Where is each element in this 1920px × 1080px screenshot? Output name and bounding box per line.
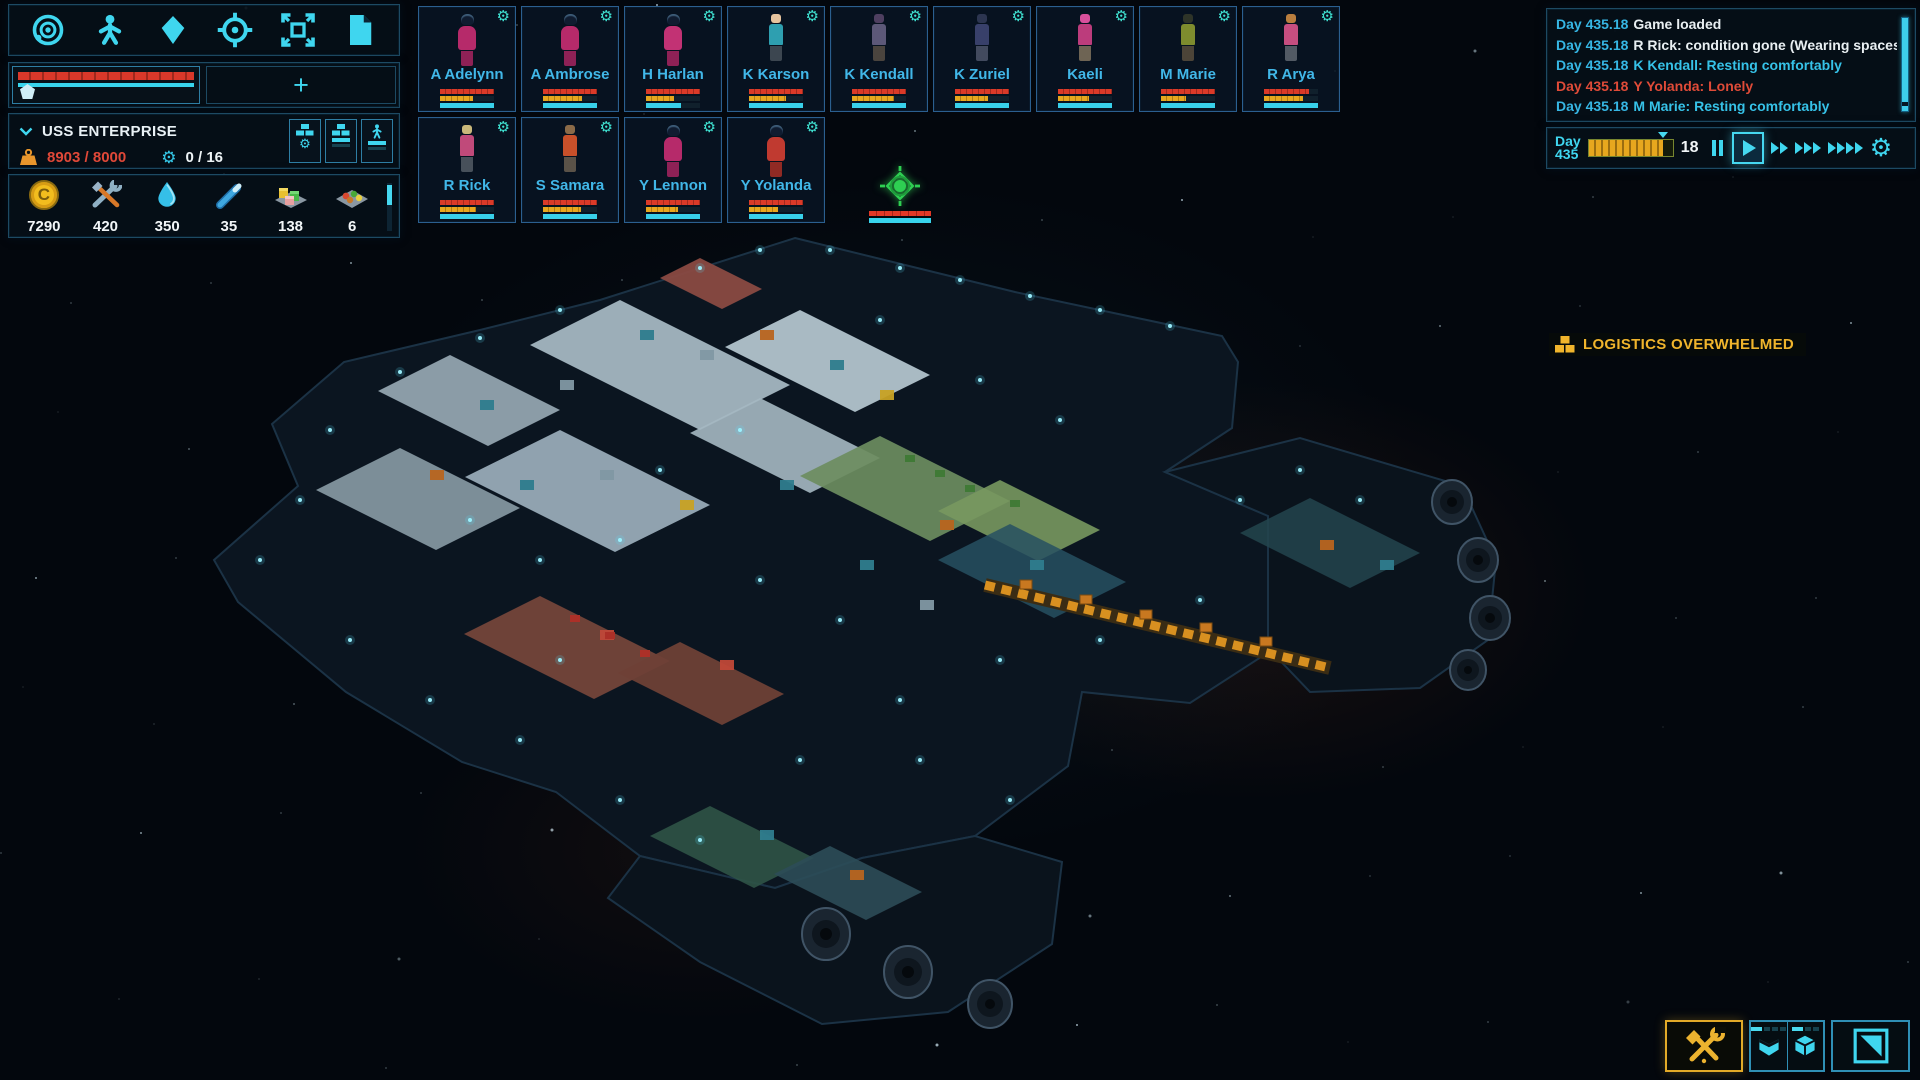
water-icon [154, 180, 180, 210]
progress-marker-icon [1658, 132, 1668, 138]
crew-card[interactable]: ⚙ K Kendall [830, 6, 928, 112]
crew-card[interactable]: ⚙ R Arya [1242, 6, 1340, 112]
health-bar [1161, 89, 1215, 94]
energy-bar [1161, 96, 1215, 101]
health-bar [543, 200, 597, 205]
crew-card[interactable]: ⚙ Kaeli [1036, 6, 1134, 112]
morale-bar [1161, 103, 1215, 108]
crew-name: A Adelynn [419, 66, 515, 83]
capacity-bar [368, 141, 386, 145]
sprite-legs [1182, 46, 1194, 61]
resource-energy-rod: 35 [198, 180, 260, 234]
alert-label: LOGISTICS OVERWHELMED [1583, 336, 1794, 353]
crew-card[interactable]: ⚙ Y Lennon [624, 117, 722, 223]
crew-card[interactable]: ⚙ Y Yolanda [727, 117, 825, 223]
log-day: Day 435.18 [1556, 16, 1628, 32]
sprite-head [667, 14, 680, 25]
sprite-body [1284, 24, 1298, 45]
resource-blocks: 138 [260, 180, 322, 234]
crew-stat-bars [440, 87, 494, 108]
energy-bar [852, 96, 906, 101]
blocks-value: 138 [278, 219, 303, 234]
log-entry[interactable]: Day 435.18M Marie: Resting comfortably [1556, 96, 1897, 117]
day-counter: Day 435 [1555, 135, 1581, 161]
ship-status-bar[interactable]: + [8, 62, 400, 108]
resource-food: 6 [321, 180, 383, 234]
energy-rod-value: 35 [221, 219, 238, 234]
speed-3x-button[interactable] [1795, 142, 1821, 154]
energy-bar [1058, 96, 1112, 101]
morale-bar [852, 103, 906, 108]
crew-sprite [831, 14, 927, 66]
log-entry[interactable]: Day 435.18R Rick: condition gone (Wearin… [1556, 35, 1897, 56]
sprite-body [769, 24, 783, 45]
view-toggle-icon [1852, 1027, 1890, 1065]
sprite-head [1183, 14, 1193, 23]
crew-icon[interactable] [87, 9, 133, 51]
play-icon [1743, 140, 1756, 156]
resource-water: 350 [136, 180, 198, 234]
settings-gear-icon[interactable]: ⚙ [1870, 136, 1892, 161]
log-day: Day 435.18 [1556, 98, 1628, 114]
sprite-legs [461, 51, 473, 66]
main-toolbar [8, 4, 400, 56]
sprite-body [664, 26, 682, 51]
crew-sprite [728, 125, 824, 177]
cube-icon [1793, 1034, 1817, 1058]
sprite-body [561, 26, 579, 51]
crew-stat-bars [543, 198, 597, 219]
sprite-head [770, 125, 783, 136]
crew-name: Y Yolanda [728, 177, 824, 194]
sprite-body [563, 135, 577, 156]
crew-card-grid: ⚙ A Adelynn ⚙ [418, 6, 1434, 223]
sprite-head [461, 14, 474, 25]
sprite-legs [564, 51, 576, 66]
crew-card[interactable]: ⚙ S Samara [521, 117, 619, 223]
sprite-legs [461, 157, 473, 172]
crew-slots-icon: ⚙ [161, 149, 176, 166]
health-bar [749, 89, 803, 94]
morale-bar [749, 103, 803, 108]
ship-mini-buttons: ⚙ [289, 119, 393, 163]
crew-name: M Marie [1140, 66, 1236, 83]
energy-bar [543, 207, 597, 212]
sprite-head [1080, 14, 1090, 23]
sprite-legs [770, 46, 782, 61]
morale-bar [749, 214, 803, 219]
event-log: Day 435.18Game loaded Day 435.18R Rick: … [1546, 8, 1916, 122]
add-ship-button[interactable]: + [206, 66, 396, 104]
crew-stat-bars [646, 87, 700, 108]
sprite-head [1286, 14, 1296, 23]
morale-bar [1058, 103, 1112, 108]
sprite-body [872, 24, 886, 45]
pause-button[interactable] [1710, 140, 1725, 156]
resources-panel: C 7290 420 350 [8, 174, 400, 238]
crew-stat-bars [1264, 87, 1318, 108]
energy-bar [955, 96, 1009, 101]
energy-bar [749, 96, 803, 101]
level-bar [332, 144, 350, 147]
health-bar [852, 89, 906, 94]
sprite-head [564, 14, 577, 25]
logistics-alert[interactable]: LOGISTICS OVERWHELMED [1549, 333, 1806, 356]
crew-stat-bars [955, 87, 1009, 108]
resources-scrollbar[interactable] [387, 183, 392, 231]
game-screen: + USS ENTERPRISE 8903 / 8000 ⚙ 0 / 16 ⚙ [0, 0, 1920, 1080]
log-message: K Kendall: Resting comfortably [1633, 57, 1841, 73]
morale-bar [440, 214, 494, 219]
sprite-legs [873, 46, 885, 61]
crew-stat-bars [749, 198, 803, 219]
crew-card[interactable]: ⚙ M Marie [1139, 6, 1237, 112]
health-bar [1058, 89, 1112, 94]
sprite-body [460, 135, 474, 156]
energy-bar [543, 96, 597, 101]
health-bar [646, 200, 700, 205]
crew-stat-bars [749, 87, 803, 108]
sprite-head [977, 14, 987, 23]
crew-name: K Karson [728, 66, 824, 83]
crew-name: H Harlan [625, 66, 721, 83]
log-entry[interactable]: Day 435.18K Kendall: Resting comfortably [1556, 55, 1897, 76]
level-bar [332, 138, 350, 142]
morale-bar [543, 214, 597, 219]
crew-name: Kaeli [1037, 66, 1133, 83]
shield-bar [18, 83, 194, 87]
log-day: Day 435.18 [1556, 37, 1628, 53]
sprite-body [458, 26, 476, 51]
crew-sprite [522, 125, 618, 177]
ship-info-panel: USS ENTERPRISE 8903 / 8000 ⚙ 0 / 16 ⚙ [8, 113, 400, 169]
sprite-legs [770, 162, 782, 177]
crew-slots: 0 / 16 [186, 149, 224, 166]
log-message: R Rick: condition gone (Wearing spacesui… [1633, 37, 1897, 53]
crew-stat-bars [1058, 87, 1112, 108]
storage-button-group [1749, 1020, 1825, 1072]
crew-sprite [1037, 14, 1133, 66]
sprite-legs [1079, 46, 1091, 61]
person-icon [370, 124, 384, 139]
morale-bar [543, 103, 597, 108]
storage-closed-button[interactable] [1787, 1022, 1824, 1070]
target-icon[interactable] [212, 9, 258, 51]
crew-name: S Samara [522, 177, 618, 194]
sprite-body [975, 24, 989, 45]
health-bar [543, 89, 597, 94]
log-entry[interactable]: Day 435.18Y Yolanda: Lonely [1556, 76, 1897, 97]
sprite-head [462, 125, 472, 134]
sprite-legs [564, 157, 576, 172]
crew-sprite [625, 14, 721, 66]
energy-bar [440, 207, 494, 212]
log-message: Y Yolanda: Lonely [1633, 78, 1753, 94]
food-icon [335, 180, 369, 210]
storage-closed-meter [1792, 1026, 1819, 1031]
water-value: 350 [155, 219, 180, 234]
crew-name: Y Lennon [625, 177, 721, 194]
health-bar [440, 89, 494, 94]
crew-sprite [934, 14, 1030, 66]
crew-card[interactable]: ⚙ A Adelynn [418, 6, 516, 112]
ship-health-box[interactable] [12, 66, 200, 104]
morale-bar [440, 103, 494, 108]
energy-bar [749, 207, 803, 212]
resource-tools: 420 [75, 180, 137, 234]
crew-stat-bars [543, 87, 597, 108]
mass-icon [19, 149, 38, 166]
storage-levels-button[interactable] [325, 119, 357, 163]
sprite-body [1078, 24, 1092, 45]
view-toggle-button[interactable] [1831, 1020, 1910, 1072]
sprite-head [667, 125, 680, 136]
log-message: Game loaded [1633, 16, 1721, 32]
sprite-head [771, 14, 781, 23]
crew-sprite [419, 14, 515, 66]
sprite-head [565, 125, 575, 134]
left-panel: + USS ENTERPRISE 8903 / 8000 ⚙ 0 / 16 ⚙ [8, 4, 400, 238]
sprite-head [874, 14, 884, 23]
crew-card[interactable]: ⚙ H Harlan [624, 6, 722, 112]
system-view-icon[interactable] [25, 9, 71, 51]
play-button[interactable] [1732, 132, 1764, 164]
energy-rod-icon [214, 180, 244, 210]
crew-sprite [522, 14, 618, 66]
crates-icon [296, 124, 314, 136]
sprite-legs [667, 51, 679, 66]
crew-name: K Kendall [831, 66, 927, 83]
crew-sprite [419, 125, 515, 177]
crew-card[interactable]: ⚙ K Zuriel [933, 6, 1031, 112]
log-day: Day 435.18 [1556, 57, 1628, 73]
energy-bar [440, 96, 494, 101]
sprite-body [1181, 24, 1195, 45]
crew-card[interactable]: ⚙ A Ambrose [521, 6, 619, 112]
health-bar [1264, 89, 1318, 94]
storage-open-meter [1751, 1026, 1786, 1031]
resource-credits: C 7290 [13, 180, 75, 234]
crew-sprite [1140, 14, 1236, 66]
log-day: Day 435.18 [1556, 78, 1628, 94]
sprite-legs [976, 46, 988, 61]
day-progress-fill [1589, 140, 1663, 156]
scrollbar-thumb[interactable] [387, 185, 392, 205]
crew-name: R Arya [1243, 66, 1339, 83]
bottom-toolbar [1665, 1020, 1910, 1072]
crew-sprite [625, 125, 721, 177]
storage-open-button[interactable] [1751, 1022, 1787, 1070]
resource-icon[interactable] [150, 9, 196, 51]
sprite-legs [667, 162, 679, 177]
capacity-bar [368, 147, 386, 150]
sprite-body [767, 137, 785, 162]
ship-name: USS ENTERPRISE [42, 123, 177, 140]
crew-name: R Rick [419, 177, 515, 194]
blocks-icon [274, 180, 308, 210]
log-scrollbar[interactable] [1901, 17, 1909, 112]
food-value: 6 [348, 219, 356, 234]
crew-sprite [728, 14, 824, 66]
sprite-legs [1285, 46, 1297, 61]
health-bar [646, 89, 700, 94]
energy-bar [646, 207, 700, 212]
ship-mass: 8903 / 8000 [47, 149, 126, 166]
hull-bar [18, 72, 194, 80]
chevron-down-icon[interactable] [19, 127, 33, 136]
hour-value: 18 [1681, 139, 1703, 157]
crew-capacity-button[interactable] [361, 119, 393, 163]
crew-name: K Zuriel [934, 66, 1030, 83]
log-entry[interactable]: Day 435.18Game loaded [1556, 14, 1897, 35]
morale-bar [646, 214, 700, 219]
energy-bar [1264, 96, 1318, 101]
morale-bar [1264, 103, 1318, 108]
credits-icon: C [29, 180, 59, 210]
expand-icon[interactable] [275, 9, 321, 51]
gear-icon: ⚙ [299, 138, 311, 150]
crew-card[interactable]: ⚙ R Rick [418, 117, 516, 223]
crew-stat-bars [646, 198, 700, 219]
report-icon[interactable] [337, 9, 383, 51]
morale-bar [955, 103, 1009, 108]
crates-icon [1555, 336, 1575, 353]
crew-name: A Ambrose [522, 66, 618, 83]
crew-stat-bars [852, 87, 906, 108]
build-tool-button[interactable] [1665, 1020, 1743, 1072]
health-bar [955, 89, 1009, 94]
crew-sprite [1243, 14, 1339, 66]
speed-4x-button[interactable] [1828, 142, 1863, 154]
health-bar [440, 200, 494, 205]
speed-2x-button[interactable] [1771, 142, 1788, 154]
day-progress [1588, 139, 1674, 157]
storage-settings-button[interactable]: ⚙ [289, 119, 321, 163]
health-bar [749, 200, 803, 205]
open-box-icon [1757, 1034, 1781, 1058]
crew-stat-bars [440, 198, 494, 219]
sprite-body [664, 137, 682, 162]
crates-icon [332, 124, 350, 136]
tools-value: 420 [93, 219, 118, 234]
build-tools-icon [1682, 1027, 1726, 1065]
morale-bar [646, 103, 700, 108]
energy-bar [646, 96, 700, 101]
crew-stat-bars [1161, 87, 1215, 108]
crew-card[interactable]: ⚙ K Karson [727, 6, 825, 112]
credits-value: 7290 [27, 219, 60, 234]
time-controls: Day 435 18 ⚙ [1546, 127, 1916, 169]
log-message: M Marie: Resting comfortably [1633, 98, 1829, 114]
tools-icon [90, 180, 122, 210]
